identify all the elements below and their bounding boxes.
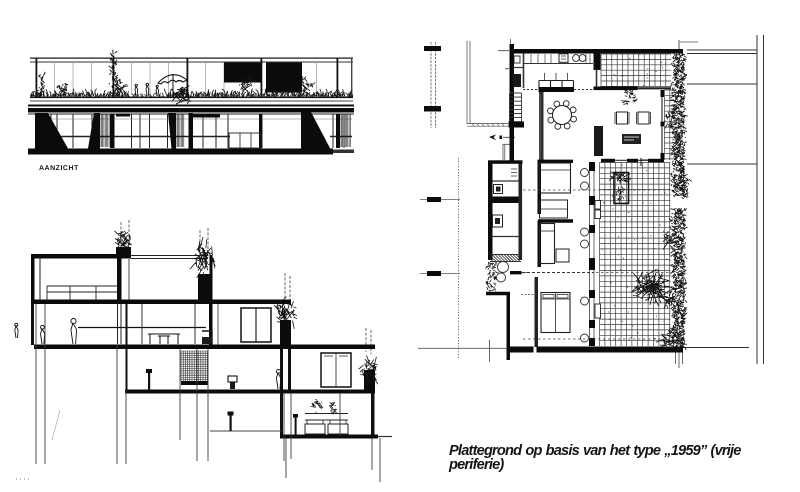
svg-text:AANZICHT: AANZICHT xyxy=(39,165,79,172)
